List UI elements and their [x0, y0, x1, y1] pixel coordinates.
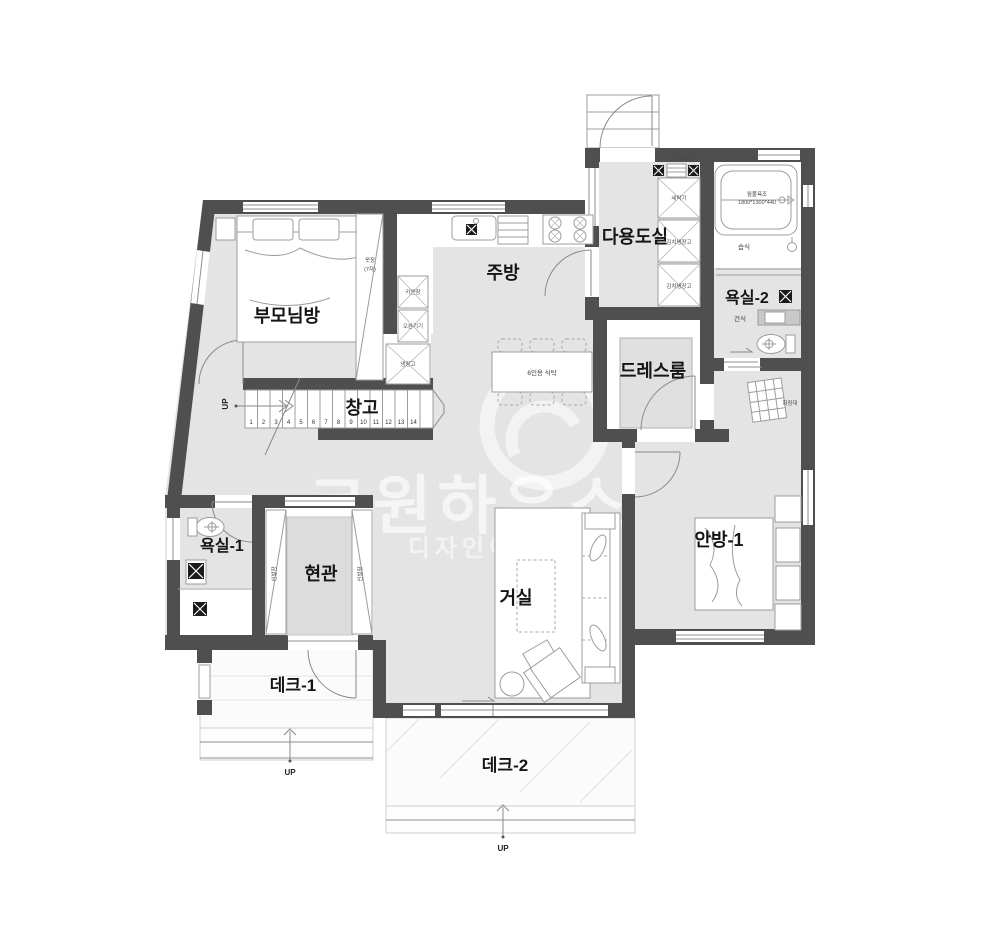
tall-cabinet-label: 키큰장 — [405, 288, 420, 296]
shoe-cabinet-left: 신발장 — [266, 510, 286, 634]
window-entry-top — [285, 497, 355, 506]
floor-plan: 코원하우스 디자인이 UP 데크-1 UP 데크-2 — [0, 0, 1000, 945]
dining-table-label: 6인용 식탁 — [527, 368, 556, 377]
parents-nightstand — [216, 218, 235, 240]
room-label-storage: 창고 — [345, 398, 378, 418]
stairs-up-label: UP — [221, 398, 230, 410]
bath1-sink — [186, 560, 206, 584]
pillow — [299, 219, 339, 240]
shoe-cabinet-label: 신발장 — [270, 566, 278, 581]
vanity-mirror — [747, 378, 786, 422]
pillow — [253, 219, 293, 240]
bath1-lower-floor — [178, 588, 252, 635]
dressroom-vanity-opening — [700, 384, 714, 420]
vanity-label: 화장대 — [782, 399, 797, 407]
room-label-living: 거실 — [499, 588, 532, 608]
kimchi-fridge-2: 김치냉장고 — [658, 264, 700, 306]
floor-plan-canvas: 코원하우스 디자인이 UP 데크-1 UP 데크-2 — [0, 0, 1000, 945]
room-label-deck1: 데크-1 — [270, 676, 316, 695]
window-top-right — [758, 150, 800, 160]
window-bath2-right — [803, 185, 813, 207]
master-headboard — [776, 566, 800, 600]
dressroom-wardrobe — [620, 338, 692, 428]
stair-number: 13 — [398, 420, 405, 426]
window-parents-top — [243, 202, 318, 212]
room-label-entrance: 현관 — [304, 564, 338, 584]
room-label-dressroom: 드레스룸 — [620, 361, 686, 381]
entry-porch — [587, 95, 659, 148]
deck-1: UP 데크-1 — [197, 648, 373, 777]
window-living-bottom-small — [403, 705, 435, 716]
room-label-deck2: 데크-2 — [482, 756, 528, 775]
stair-number: 11 — [373, 420, 380, 426]
oven-label: 오븐기기 — [403, 322, 423, 330]
window-master-right — [803, 470, 813, 525]
deck-post-top — [197, 648, 212, 663]
oven-cabinet: 오븐기기 — [398, 310, 428, 342]
deck1-up-label: UP — [284, 768, 296, 777]
master-nightstand-top — [775, 496, 801, 522]
bath1-toilet — [188, 518, 224, 537]
dressroom: 드레스룸 — [620, 361, 686, 381]
window-living-bottom-large — [441, 705, 608, 716]
boiler-label: ※도시가스보일러 — [658, 154, 699, 162]
shoe-cabinet-right: 신발장 — [352, 510, 372, 634]
whirlpool-tub: 월풀욕조 1800*1300*440 — [715, 165, 797, 235]
bath2-sink — [758, 310, 800, 325]
wardrobe-label: 옷장 — [365, 257, 375, 264]
deck-rail — [199, 665, 210, 698]
kimchi-fridge-label: 김치냉장고 — [666, 238, 691, 246]
refrigerator: 냉장고 — [386, 344, 430, 384]
tall-cabinet: 키큰장 — [398, 276, 428, 308]
sofa — [582, 513, 620, 683]
washer: 세탁기 — [658, 178, 700, 218]
stair-number: 10 — [360, 420, 367, 426]
room-label-bath1: 욕실-1 — [200, 537, 244, 555]
wet-zone-label: 습식 — [738, 242, 750, 251]
room-label-kitchen: 주방 — [486, 263, 520, 283]
dry-zone-label: 건식 — [734, 314, 746, 323]
fridge-label: 냉장고 — [400, 360, 415, 368]
shoe-cabinet-label: 신발장 — [356, 566, 364, 581]
whirlpool-label: 월풀욕조 — [747, 190, 767, 198]
stair-number: 14 — [410, 420, 417, 426]
deck2-up-label: UP — [497, 844, 509, 853]
room-label-bath2: 욕실-2 — [725, 289, 769, 307]
whirlpool-size-label: 1800*1300*440 — [738, 200, 776, 206]
boiler: ※도시가스보일러 — [653, 154, 699, 177]
deck-post-bottom — [197, 700, 212, 715]
utility-exterior-door-opening — [600, 148, 655, 162]
stair-number: 12 — [385, 420, 392, 426]
plant — [500, 672, 524, 696]
master-headboard — [776, 528, 800, 562]
deck-2: UP 데크-2 — [386, 718, 635, 853]
bath1-drain — [193, 602, 207, 616]
master-nightstand-bottom — [775, 604, 801, 630]
room-label-master: 안방-1 — [694, 530, 743, 550]
washer-label: 세탁기 — [671, 194, 686, 202]
room-label-utility: 다용도실 — [602, 227, 668, 247]
bath2-toilet — [757, 335, 795, 354]
room-label-parents: 부모님방 — [254, 306, 321, 326]
wardrobe-size-label: (7자) — [364, 265, 376, 273]
window-kitchen-top — [432, 202, 505, 212]
window-master-bottom — [676, 631, 764, 642]
window-bath1-left — [167, 518, 180, 560]
cooktop — [543, 215, 593, 244]
parents-wardrobe: 옷장 (7자) — [356, 214, 383, 380]
kimchi-fridge-label: 김치냉장고 — [666, 282, 691, 290]
entrance: 신발장 신발장 현관 — [265, 508, 373, 635]
